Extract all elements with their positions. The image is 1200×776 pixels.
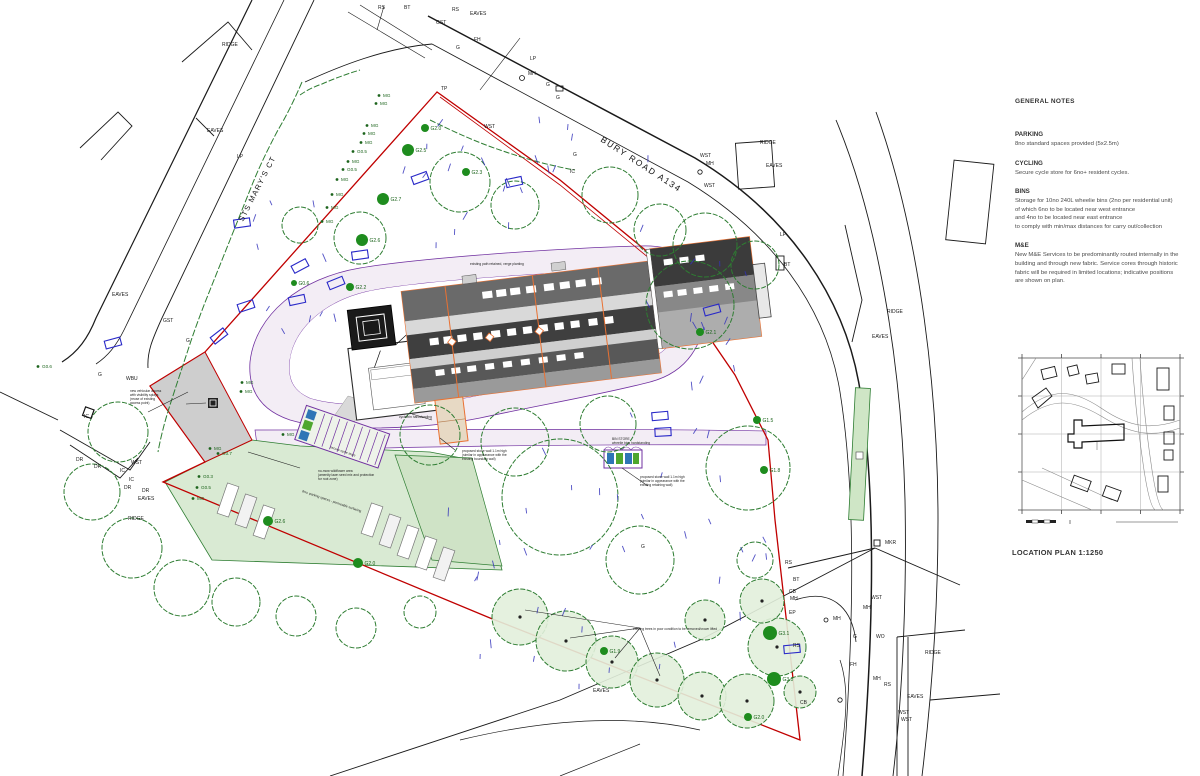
peg-label: MG xyxy=(371,123,379,128)
grass-mark xyxy=(622,546,624,552)
annotation-line: cycle/bin hardstanding xyxy=(399,415,432,419)
tree-canopy xyxy=(404,596,436,628)
peg-label: MG xyxy=(197,496,205,501)
survey-label: RS xyxy=(785,560,793,566)
survey-label: DR xyxy=(124,485,132,491)
survey-label: WST xyxy=(871,595,882,601)
note-line: building and through new fabric. Service… xyxy=(1015,260,1195,269)
annotation: proposed stone wall 1.1m high(similar in… xyxy=(462,449,507,461)
survey-label: DR xyxy=(76,457,84,463)
grass-mark xyxy=(253,214,256,221)
survey-label: FH xyxy=(474,37,481,43)
survey-label: DR xyxy=(94,464,102,470)
peg-dot xyxy=(347,160,350,163)
tree-canopy xyxy=(430,152,490,212)
survey-label: MH xyxy=(528,71,536,77)
survey-label: MH xyxy=(706,161,714,167)
tree-label: G2.6 xyxy=(275,519,286,525)
survey-label: EAVES xyxy=(872,334,889,340)
tree-trunk xyxy=(700,694,703,697)
annotation: cycle/bin hardstanding xyxy=(399,415,432,419)
general-notes-panel: GENERAL NOTES PARKING8no standard spaces… xyxy=(1015,98,1195,297)
note-line: of which 6no to be located near west ent… xyxy=(1015,206,1195,215)
survey-label: EAVES xyxy=(470,11,487,17)
grass-mark xyxy=(448,164,450,172)
survey-label: EAVES xyxy=(138,496,155,502)
note-section-me: M&ENew M&E Services to be predominantly … xyxy=(1015,242,1195,285)
survey-label: MH xyxy=(863,605,871,611)
peg-dot xyxy=(326,206,329,209)
peg-dot xyxy=(321,220,324,223)
note-line: Storage for 10no 240L wheelie bins (2no … xyxy=(1015,197,1195,206)
peg-dot xyxy=(209,447,212,450)
peg-dot xyxy=(196,486,199,489)
survey-label: BT xyxy=(404,5,410,11)
tree-label: G1.8 xyxy=(770,468,781,474)
notes-heading: GENERAL NOTES xyxy=(1015,98,1195,105)
tree-canopy xyxy=(212,578,260,626)
grass-mark xyxy=(520,187,522,193)
tree-dot xyxy=(402,144,414,156)
tree-label: G1.9 xyxy=(610,649,621,655)
tree-label: G2.0 xyxy=(431,126,442,132)
survey-label: WO xyxy=(876,634,885,640)
survey-label: EAVES xyxy=(207,128,224,134)
peg-dot xyxy=(240,390,243,393)
tree-label: G3.1 xyxy=(779,631,790,637)
peg-label: MG xyxy=(245,389,253,394)
survey-label: G xyxy=(853,634,857,640)
survey-label: EAVES xyxy=(112,292,129,298)
tree-trunk xyxy=(703,618,706,621)
tree-label: G2.1 xyxy=(706,330,717,336)
tree-label: G2.3 xyxy=(472,170,483,176)
survey-label: BT xyxy=(793,577,799,583)
peg-label: MG xyxy=(326,219,334,224)
grass-mark xyxy=(568,124,569,130)
tree-dot xyxy=(763,626,777,640)
peg-label: MG xyxy=(365,140,373,145)
survey-label: WST xyxy=(700,153,711,159)
note-line: fabric will be required in limited locat… xyxy=(1015,269,1195,278)
survey-label: WST xyxy=(898,710,909,716)
annotation-line: existing boundary wall) xyxy=(462,457,496,461)
headstone xyxy=(291,259,309,274)
tree-label: G2.7 xyxy=(391,197,402,203)
grass-mark xyxy=(477,572,479,581)
peg-label: G0.5 xyxy=(357,149,367,154)
tree-canopy xyxy=(491,181,539,229)
tree-trunk xyxy=(610,660,613,663)
annotation-line: existing path retained, verge planting xyxy=(470,262,524,266)
tree-label: G2.6 xyxy=(370,238,381,244)
note-line: to comply with min/max distances for car… xyxy=(1015,223,1195,232)
note-section-heading: BINS xyxy=(1015,188,1195,195)
tree-dot xyxy=(753,416,761,424)
survey-label: RS xyxy=(884,682,892,688)
survey-label: FH xyxy=(850,662,857,668)
tree-label: G0.6 xyxy=(299,281,310,287)
survey-label: RS xyxy=(378,5,386,11)
note-section-bins: BINSStorage for 10no 240L wheelie bins (… xyxy=(1015,188,1195,231)
grass-mark xyxy=(766,553,767,559)
survey-label: WST xyxy=(131,460,142,466)
grass-mark xyxy=(571,134,572,141)
tree-dot xyxy=(356,234,368,246)
tree-trunk xyxy=(564,639,567,642)
tree-label: G2.0 xyxy=(365,561,376,567)
survey-label: WST xyxy=(704,183,715,189)
note-line: New M&E Services to be predominantly rou… xyxy=(1015,251,1195,260)
peg-dot xyxy=(342,168,345,171)
annotation: new vehicular accesswith visibility spla… xyxy=(130,389,162,405)
survey-label: G xyxy=(641,544,645,550)
tree-trunk xyxy=(775,645,778,648)
survey-label: IC xyxy=(570,169,575,175)
peg-dot xyxy=(198,475,201,478)
survey-label: MH xyxy=(833,616,841,622)
tree-label: G2.5 xyxy=(416,148,427,154)
peg-label: MG xyxy=(336,192,344,197)
grass-mark xyxy=(266,306,269,311)
grass-mark xyxy=(617,494,618,500)
peg-label: G0.7 xyxy=(222,451,232,456)
peg-dot xyxy=(282,433,285,436)
peg-label: G0.5 xyxy=(201,485,211,490)
peg-dot xyxy=(363,132,366,135)
peg-label: MG xyxy=(246,380,254,385)
peg-dot xyxy=(360,141,363,144)
grass-mark xyxy=(463,212,467,220)
tree-trunk xyxy=(655,678,658,681)
peg-label: MG xyxy=(380,101,388,106)
peg-label: MG xyxy=(383,93,391,98)
road-label: BURY ROAD A134 xyxy=(599,134,684,194)
survey-label: RIDGE xyxy=(128,516,145,522)
peg-dot xyxy=(378,94,381,97)
tree-dot xyxy=(462,168,470,176)
survey-label: G xyxy=(98,372,102,378)
peg-dot xyxy=(192,497,195,500)
tree-dot xyxy=(346,283,354,291)
headstone xyxy=(352,250,369,260)
note-section-parking: PARKING8no standard spaces provided (5x2… xyxy=(1015,131,1195,149)
location-plan-label: LOCATION PLAN 1:1250 xyxy=(1012,548,1194,557)
tree-dot xyxy=(600,647,608,655)
tree-trunk xyxy=(745,699,748,702)
survey-label: MH xyxy=(873,676,881,682)
road-label: STS MARY'S CT xyxy=(237,154,278,223)
grass-mark xyxy=(257,244,258,250)
grass-mark xyxy=(630,413,632,418)
tree-canopy xyxy=(282,207,318,243)
survey-label: LP xyxy=(237,154,244,160)
survey-label: MH xyxy=(790,596,798,602)
survey-label: CB xyxy=(800,700,808,706)
survey-label: EP xyxy=(789,610,796,616)
tree-dot xyxy=(377,193,389,205)
survey-label: IC xyxy=(120,468,125,474)
annotation-line: access point) xyxy=(130,401,149,405)
tree-canopy xyxy=(276,596,316,636)
grass-mark xyxy=(313,200,314,207)
landscape-areas xyxy=(165,388,870,570)
annotation-line: for root zone) xyxy=(318,477,338,481)
drawing-sheet: { "notes": { "heading": "GENERAL NOTES",… xyxy=(0,0,1200,776)
peg-dot xyxy=(336,178,339,181)
tree-canopy xyxy=(606,526,674,594)
tree-canopy xyxy=(582,167,638,223)
annotation-line: existing retaining wall) xyxy=(640,483,672,487)
survey-label: G xyxy=(456,45,460,51)
grass-mark xyxy=(461,146,463,151)
peg-dot xyxy=(366,124,369,127)
location-plan-map xyxy=(1012,350,1190,535)
note-section-heading: PARKING xyxy=(1015,131,1195,138)
survey-label: EAVES xyxy=(766,163,783,169)
peg-dot xyxy=(352,150,355,153)
survey-label: RIDGE xyxy=(887,309,904,315)
grass-mark xyxy=(503,186,505,192)
survey-label: WBU xyxy=(126,376,138,382)
survey-label: IC xyxy=(129,477,134,483)
locplan-scalebar xyxy=(1026,520,1070,524)
annotation: existing trees in poor condition to be r… xyxy=(633,627,717,631)
grass-mark xyxy=(719,577,720,584)
peg-dot xyxy=(37,365,40,368)
tree-label: G2.2 xyxy=(356,285,367,291)
grass-mark xyxy=(691,382,692,391)
access-splay xyxy=(150,352,252,462)
grass-mark xyxy=(499,540,500,545)
peg-label: MG xyxy=(214,446,222,451)
annotation: proposed stone wall 1.1m high(similar in… xyxy=(640,475,685,487)
survey-label: EAVES xyxy=(593,688,610,694)
survey-label: RS xyxy=(793,643,801,649)
grass-mark xyxy=(641,514,643,519)
note-section-heading: M&E xyxy=(1015,242,1195,249)
note-section-cycling: CYCLINGSecure cycle store for 6no+ resid… xyxy=(1015,160,1195,178)
tree-dot xyxy=(353,558,363,568)
survey-label: CB xyxy=(789,589,797,595)
grass-mark xyxy=(674,642,675,648)
tree-canopy xyxy=(502,439,618,555)
survey-label: RIDGE xyxy=(925,650,942,656)
peg-label: G0.3 xyxy=(203,474,213,479)
headstone xyxy=(652,411,669,420)
tree-dot xyxy=(760,466,768,474)
tree-dot xyxy=(263,516,273,526)
grass-mark xyxy=(590,545,593,550)
grass-mark xyxy=(542,448,545,455)
annotation-line: wheelie bins hardstanding xyxy=(612,441,650,445)
survey-label: GST xyxy=(436,20,446,26)
tree-label: G3.0 xyxy=(783,677,794,683)
survey-label: RIDGE xyxy=(760,140,777,146)
note-line: Secure cycle store for 6no+ resident cyc… xyxy=(1015,169,1195,178)
note-section-heading: CYCLING xyxy=(1015,160,1195,167)
survey-label: DR xyxy=(142,488,150,494)
survey-label: GST xyxy=(163,318,173,324)
grass-mark xyxy=(423,173,426,178)
site-plan-drawing: BURY ROAD A134STS MARY'S CTRIDGEEAVESLPR… xyxy=(0,0,1000,776)
survey-label: MKR xyxy=(885,540,897,546)
tree-canopy xyxy=(154,560,210,616)
grass-mark xyxy=(323,254,327,262)
survey-label: WST xyxy=(901,717,912,723)
grass-mark xyxy=(720,475,721,482)
survey-label: LP xyxy=(780,232,787,238)
grass-mark xyxy=(763,537,766,543)
annotation: existing path retained, verge planting xyxy=(470,262,524,266)
peg-dot xyxy=(241,381,244,384)
grass-mark xyxy=(640,225,643,232)
tree-canopy xyxy=(88,402,148,462)
annotation-line: existing trees in poor condition to be r… xyxy=(633,627,717,631)
peg-label: MG xyxy=(341,177,349,182)
grass-mark xyxy=(539,117,540,123)
peg-label: G0.6 xyxy=(42,364,52,369)
peg-dot xyxy=(217,452,220,455)
grass-mark xyxy=(403,166,405,173)
grass-mark xyxy=(733,365,734,371)
survey-label: BT xyxy=(784,262,790,268)
tree-trunk xyxy=(518,615,521,618)
survey-label: LP xyxy=(530,56,537,62)
grass-mark xyxy=(490,639,491,648)
peg-label: G0.5 xyxy=(347,167,357,172)
peg-dot xyxy=(331,193,334,196)
survey-label: IC xyxy=(84,414,89,420)
survey-label: TP xyxy=(441,86,448,92)
tree-dot xyxy=(696,328,704,336)
tree-dot xyxy=(767,672,781,686)
tree-canopy xyxy=(737,542,773,578)
tree-trunk xyxy=(798,690,801,693)
peg-label: MG xyxy=(331,205,339,210)
tree-canopy xyxy=(102,518,162,578)
peg-dot xyxy=(375,102,378,105)
grass-mark xyxy=(524,548,527,555)
survey-label: RS xyxy=(452,7,460,13)
grass-mark xyxy=(685,531,687,538)
peg-label: MG xyxy=(368,131,376,136)
grass-mark xyxy=(526,508,527,514)
note-line: 8no standard spaces provided (5x2.5m) xyxy=(1015,140,1195,149)
survey-label: G xyxy=(573,152,577,158)
note-line: and 4no to be located near east entrance xyxy=(1015,214,1195,223)
tree-label: G2.0 xyxy=(754,715,765,721)
note-line: are shown on plan. xyxy=(1015,277,1195,286)
peg-label: MG xyxy=(287,432,295,437)
survey-label: RIDGE xyxy=(222,42,239,48)
tree-dot xyxy=(291,280,297,286)
tree-trunk xyxy=(760,599,763,602)
grass-mark xyxy=(533,656,534,662)
tree-label: G1.5 xyxy=(763,418,774,424)
survey-label: G xyxy=(186,338,190,344)
tree-canopy xyxy=(64,464,120,520)
location-plan: LOCATION PLAN 1:1250 xyxy=(1012,350,1194,557)
grass-mark xyxy=(752,554,755,561)
survey-label: G xyxy=(556,95,560,101)
survey-label: EAVES xyxy=(907,694,924,700)
survey-label: G xyxy=(546,82,550,88)
grass-mark xyxy=(709,519,711,524)
survey-label: WST xyxy=(484,124,495,130)
grass-mark xyxy=(270,201,272,206)
tree-dot xyxy=(744,713,752,721)
grass-mark xyxy=(475,577,478,581)
grass-mark xyxy=(700,376,704,384)
peg-label: MG xyxy=(352,159,360,164)
tree-dot xyxy=(421,124,429,132)
tree-canopy xyxy=(336,608,376,648)
